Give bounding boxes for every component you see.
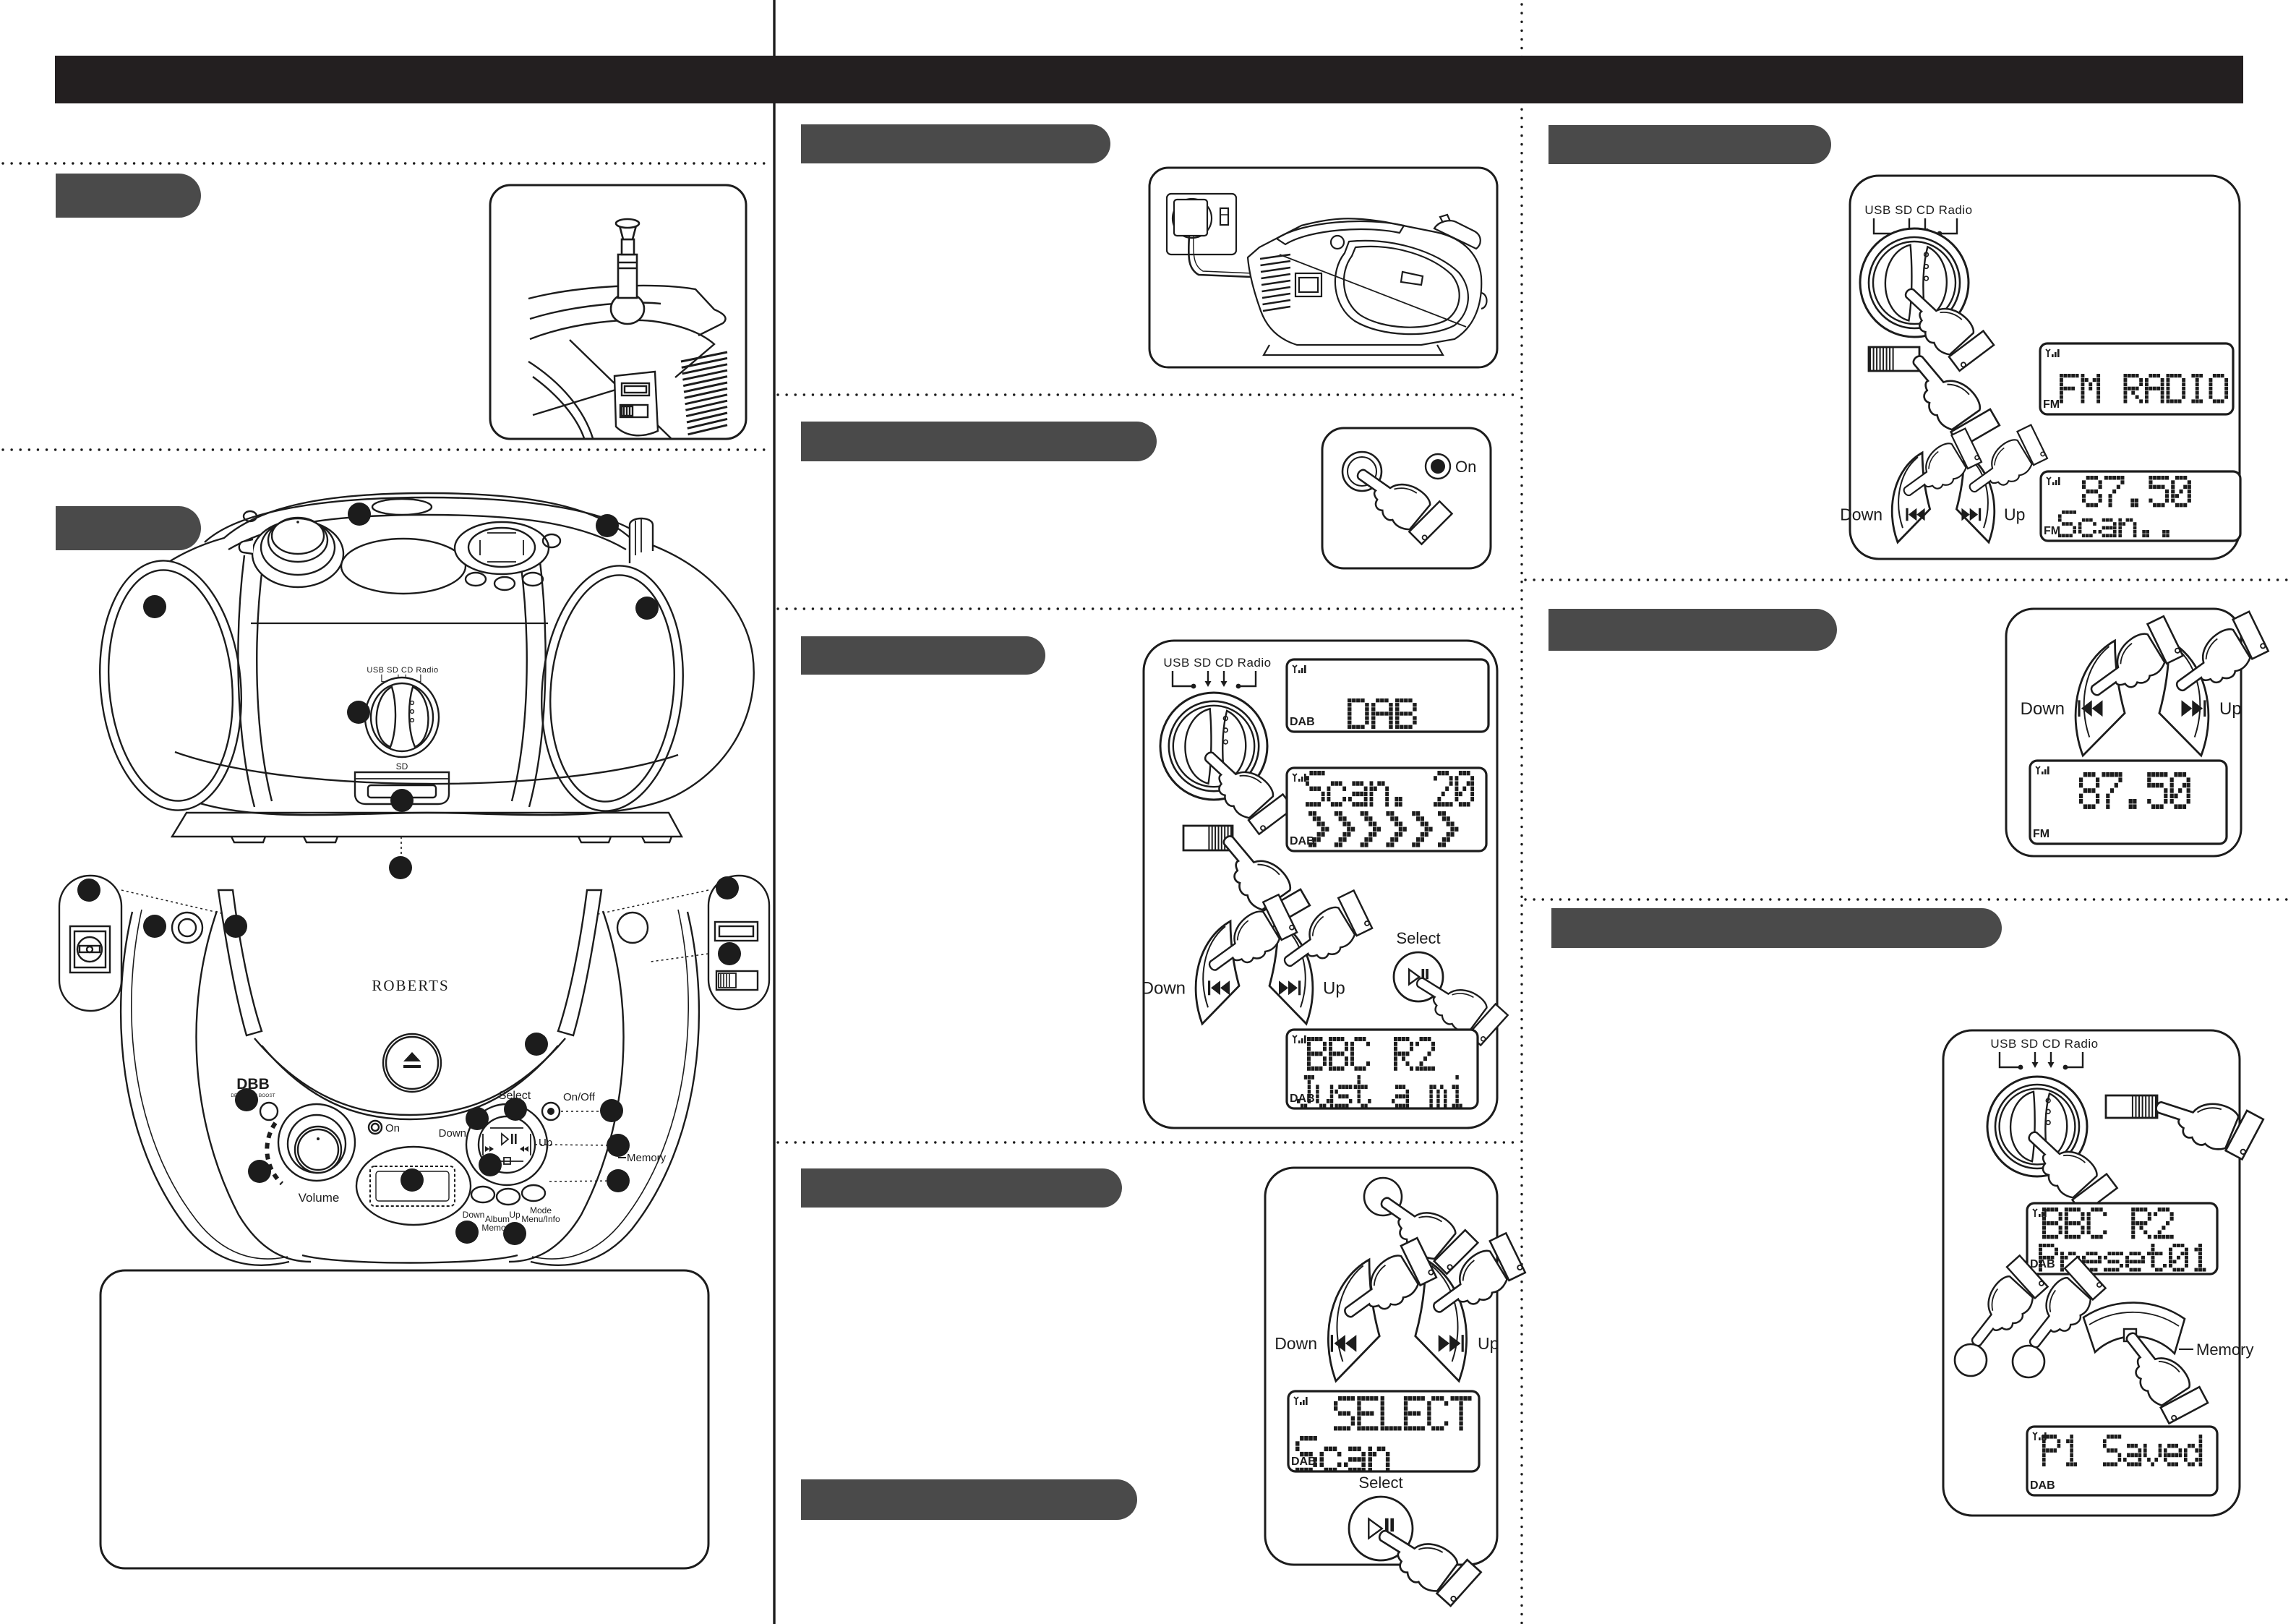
svg-text:Up: Up [539,1137,552,1149]
svg-text:DAB: DAB [1290,1093,1315,1105]
svg-text:Up: Up [2219,699,2242,719]
svg-text:FM: FM [2044,525,2060,537]
svg-text:Down: Down [1141,978,1186,998]
svg-text:Up: Up [509,1210,521,1220]
svg-text:USB SD CD Radio: USB SD CD Radio [1864,203,1972,217]
svg-text:USB SD CD Radio: USB SD CD Radio [1990,1037,2098,1051]
svg-text:DAB: DAB [2030,1479,2055,1492]
svg-text:DAB: DAB [1290,716,1315,728]
svg-text:Down: Down [439,1127,466,1140]
svg-text:On/Off: On/Off [563,1091,596,1103]
svg-text:Memory: Memory [2196,1341,2253,1359]
svg-text:Select: Select [1396,929,1440,947]
svg-text:DAB: DAB [2030,1258,2055,1270]
svg-text:Up: Up [1323,978,1345,998]
svg-text:Down: Down [463,1210,485,1220]
svg-text:Select: Select [1358,1474,1402,1492]
svg-text:Down: Down [1840,505,1882,524]
svg-text:Memory: Memory [627,1152,667,1164]
svg-text:Down: Down [2021,699,2065,719]
svg-text:USB SD CD Radio: USB SD CD Radio [367,666,438,675]
svg-text:Up: Up [2004,505,2025,524]
svg-text:DAB: DAB [1291,1456,1316,1468]
svg-text:On: On [1455,458,1476,476]
svg-text:ROBERTS: ROBERTS [372,977,449,994]
svg-text:Down: Down [1275,1334,1317,1353]
svg-text:SD: SD [396,761,408,772]
svg-text:Up: Up [1478,1334,1499,1353]
svg-text:On: On [385,1122,400,1134]
svg-text:Volume: Volume [299,1191,340,1205]
svg-text:USB SD CD Radio: USB SD CD Radio [1163,656,1271,670]
svg-text:FM: FM [2043,398,2060,411]
svg-text:Menu/Info: Menu/Info [521,1214,560,1224]
svg-text:FM: FM [2033,828,2049,840]
